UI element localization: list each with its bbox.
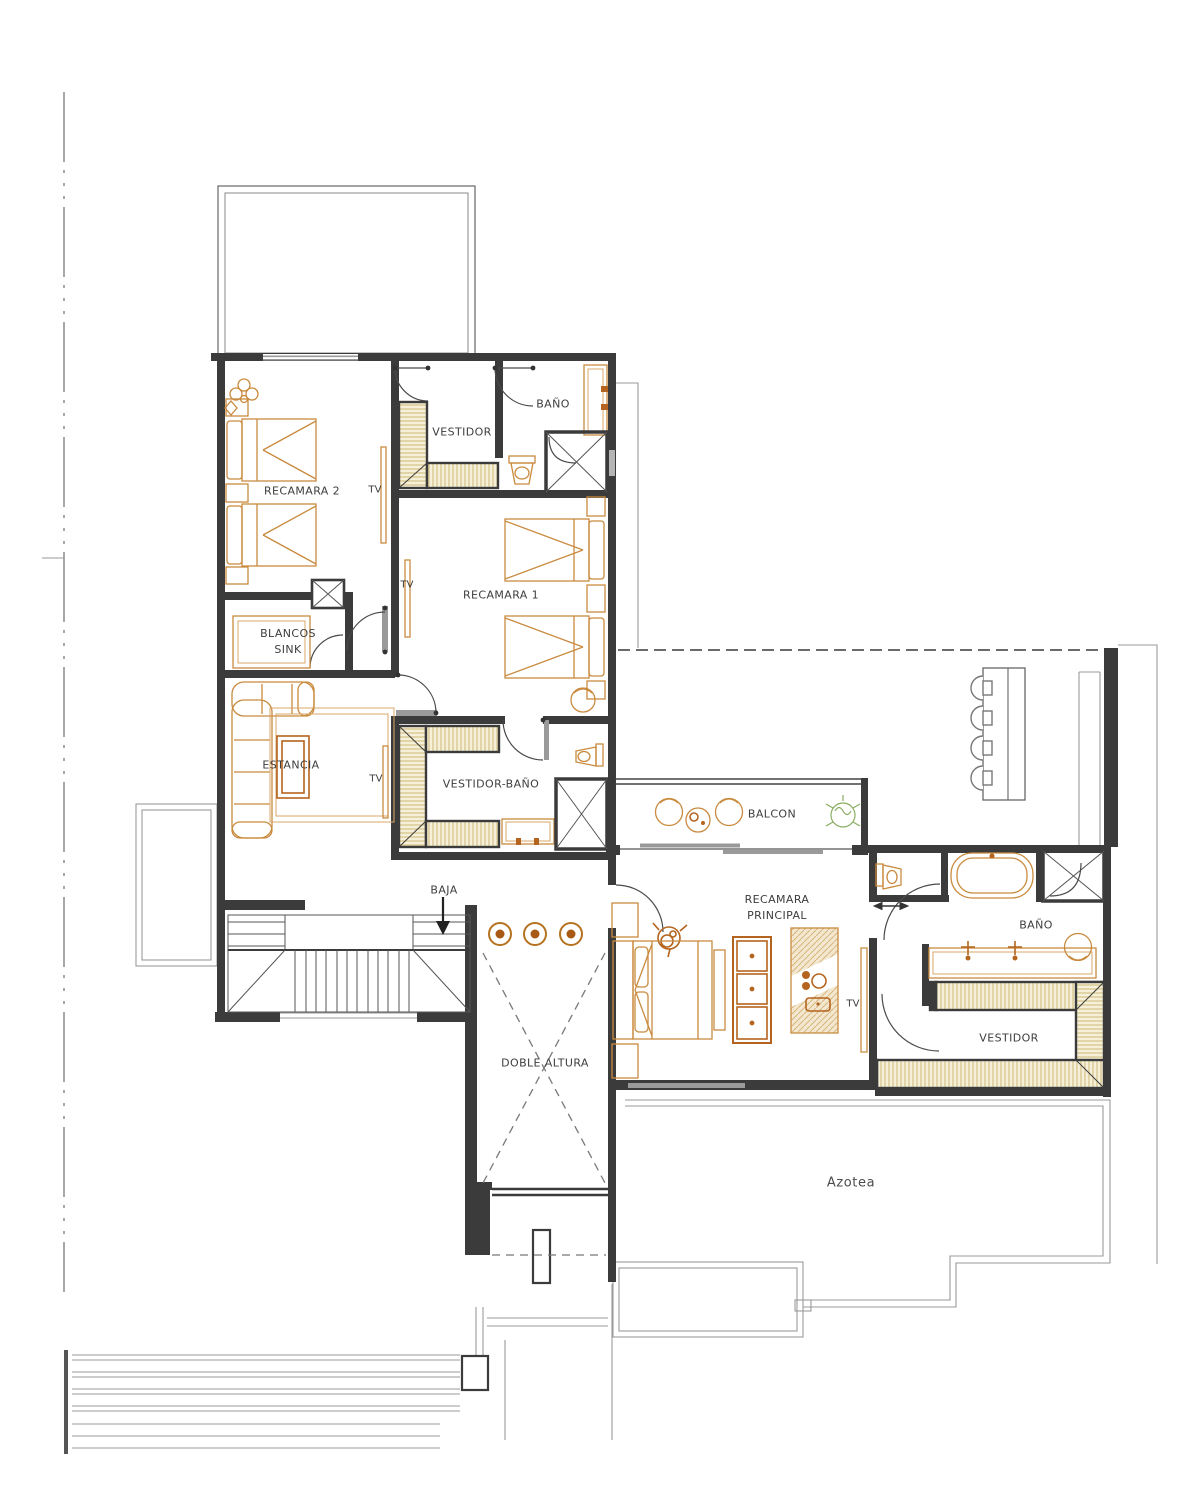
- lower-wall-pier: [533, 1230, 550, 1283]
- window-right-wall: [609, 450, 615, 476]
- bath-north: [509, 365, 608, 492]
- bed-icon: [505, 519, 604, 581]
- room-label-blancos: BLANCOS SINK: [260, 626, 316, 658]
- room-label-bano-principal: BAÑO: [1019, 919, 1053, 932]
- room-label-vestidor-bano: VESTIDOR-BAÑO: [443, 778, 539, 791]
- tv-label: TV: [368, 485, 381, 496]
- toilet-icon: [509, 456, 535, 484]
- shower-icon: [1043, 851, 1104, 901]
- down-arrow-icon: [436, 897, 450, 935]
- toilet-icon: [876, 864, 901, 889]
- balcony-railing: [615, 779, 866, 784]
- room-label-vestidor-norte: VESTIDOR: [432, 426, 491, 439]
- floor-plan-linework: [0, 0, 1200, 1500]
- shower-icon: [546, 432, 607, 492]
- sliding-door-arrow: [874, 903, 908, 910]
- sink-vanity-icon: [502, 819, 554, 845]
- shaft-left-wall: [465, 905, 492, 1255]
- sink-vanity-icon: [929, 941, 1096, 978]
- tv-icon: [861, 948, 867, 1052]
- roof-terrace-outline: [218, 186, 475, 357]
- walls: [211, 353, 1118, 1282]
- toilet-icon: [576, 744, 603, 766]
- recamara-principal-line1: RECAMARA: [745, 892, 810, 908]
- nightstand: [587, 497, 605, 516]
- tv-label: TV: [846, 999, 859, 1010]
- lower-column: [462, 1356, 488, 1390]
- bed-icon: [227, 504, 316, 566]
- plant-icon: [653, 923, 687, 957]
- tv-label: TV: [369, 774, 382, 785]
- window-master-south: [628, 1083, 745, 1088]
- floor-plan-canvas: RECAMARA 2 VESTIDOR BAÑO TV TV RECAMARA …: [0, 0, 1200, 1500]
- room-label-bano-norte: BAÑO: [536, 398, 570, 411]
- dresser: [733, 937, 771, 1043]
- bed-icon: [613, 941, 712, 1039]
- master-bedroom-furniture: [612, 903, 867, 1078]
- tv-label: TV: [400, 580, 413, 591]
- room-label-recamara-2: RECAMARA 2: [264, 485, 340, 498]
- vestidor-bano-fixtures: [502, 744, 607, 849]
- lower-roof-outline: [136, 804, 217, 966]
- armchair-icon: [656, 799, 683, 826]
- shower-icon: [556, 779, 607, 849]
- plant-icon: [225, 379, 258, 415]
- room-label-balcon: BALCON: [748, 808, 796, 821]
- armchair-icon: [716, 799, 743, 826]
- tv-icon: [383, 746, 388, 818]
- nightstand: [226, 567, 248, 584]
- room-label-estancia: ESTANCIA: [262, 759, 319, 772]
- label-doble-altura: DOBLE ALTURA: [501, 1057, 589, 1070]
- pendant-light-icon: [489, 923, 582, 945]
- blancos-line2: SINK: [260, 642, 316, 658]
- label-azotea: Azotea: [827, 1176, 875, 1191]
- side-table: [686, 808, 710, 832]
- bench: [714, 950, 725, 1030]
- stairs-label-baja: BAJA: [430, 884, 457, 897]
- azotea-parapet: [613, 1100, 1110, 1337]
- room-label-recamara-principal: RECAMARA PRINCIPAL: [745, 892, 810, 924]
- recamara-principal-line2: PRINCIPAL: [745, 908, 810, 924]
- room-label-vestidor-principal: VESTIDOR: [979, 1032, 1038, 1045]
- tv-icon: [405, 560, 410, 637]
- sliding-door-balcony: [620, 844, 852, 855]
- double-height-shaft: [483, 923, 606, 1255]
- bed-icon: [227, 419, 316, 481]
- nightstand: [226, 484, 248, 502]
- blancos-line1: BLANCOS: [260, 626, 316, 642]
- stairs-icon: [228, 897, 470, 1012]
- vanity-desk: [791, 928, 838, 1033]
- nightstand: [587, 585, 605, 612]
- bed-icon: [505, 616, 604, 678]
- sink-vanity-icon: [584, 365, 608, 435]
- recamara-1-furniture: [405, 497, 605, 712]
- plant-icon: [826, 795, 860, 827]
- master-bath-fixtures: [876, 851, 1104, 978]
- bathtub-icon: [951, 853, 1033, 898]
- room-label-recamara-1: RECAMARA 1: [463, 589, 539, 602]
- recamara-2-furniture: [225, 379, 386, 584]
- pergola-louvers: [64, 1350, 460, 1454]
- tv-icon: [381, 447, 386, 543]
- terrace-bar: [971, 668, 1100, 845]
- armchair-icon: [571, 688, 595, 712]
- armchair-icon: [1065, 934, 1092, 961]
